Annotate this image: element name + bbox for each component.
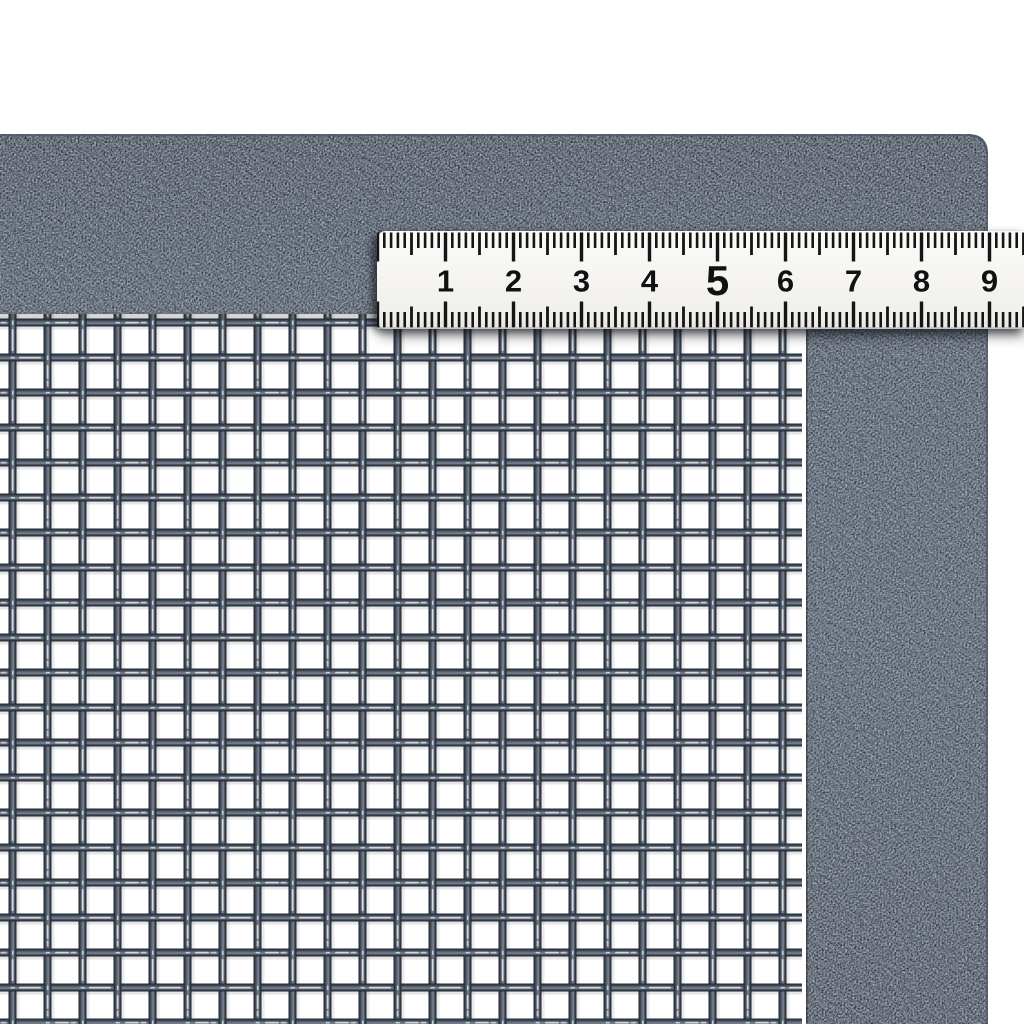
ruler-number: 7 bbox=[845, 265, 861, 296]
product-photo: 1 2 3 4 5 6 7 8 9 bbox=[0, 0, 1024, 1024]
ruler-numbers: 1 2 3 4 5 6 7 8 9 bbox=[377, 231, 1024, 329]
ruler-number-emphasized: 5 bbox=[706, 260, 728, 302]
ruler-number: 3 bbox=[573, 265, 589, 296]
ruler: 1 2 3 4 5 6 7 8 9 bbox=[377, 231, 1024, 329]
ruler-number: 4 bbox=[641, 265, 657, 296]
metal-frame bbox=[0, 0, 1024, 1024]
ruler-number: 1 bbox=[437, 265, 453, 296]
ruler-number: 2 bbox=[505, 265, 521, 296]
ruler-number: 9 bbox=[981, 265, 997, 296]
ruler-number: 8 bbox=[913, 265, 929, 296]
ruler-number: 6 bbox=[777, 265, 793, 296]
